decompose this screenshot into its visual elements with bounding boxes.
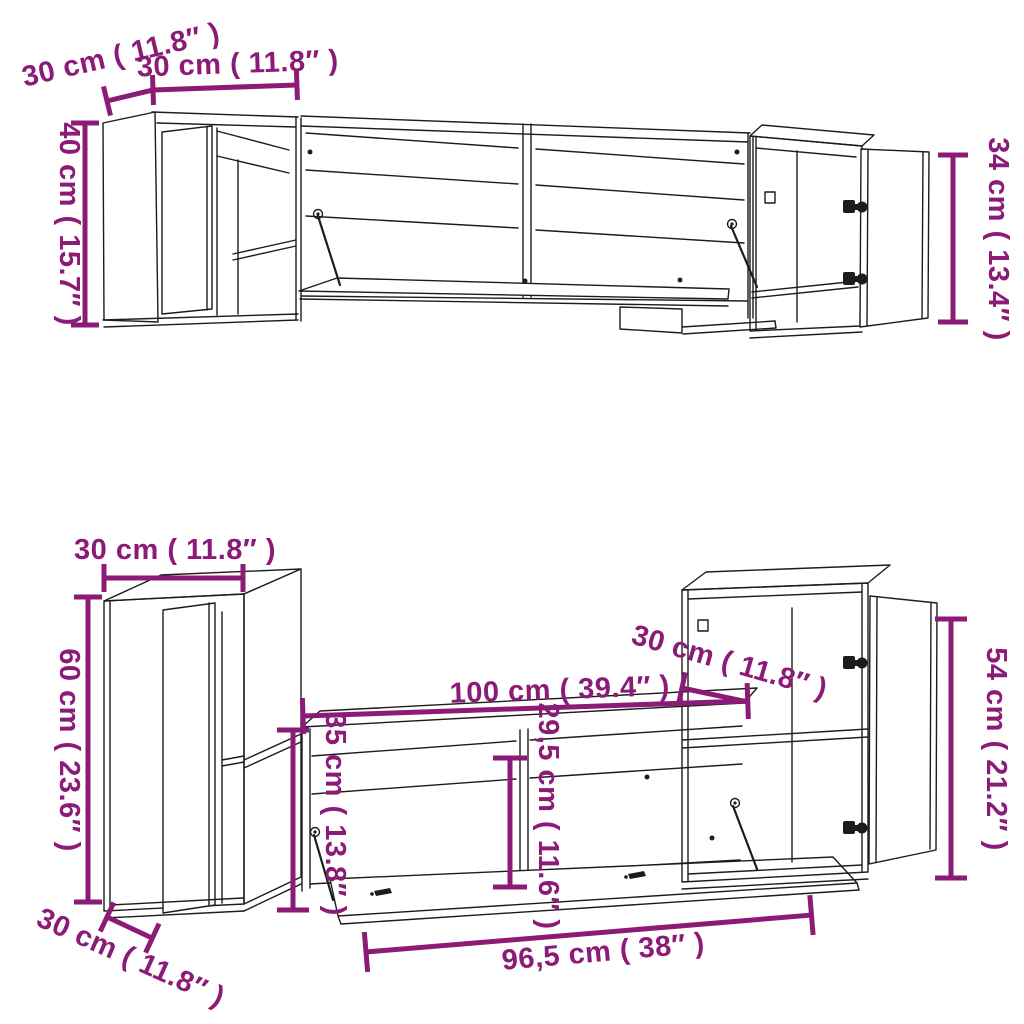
bottom-left-cabinet [104,569,301,918]
dim-label: 30 cm ( 11.8″ ) [136,44,339,83]
top-gas-struts [314,210,758,288]
pin-hole-dot [710,836,715,841]
furniture-dimension-drawing: 30 cm ( 11.8″ ) 30 cm ( 11.8″ ) 40 cm ( … [0,0,1024,1024]
dim-bottom-right-cabinet-height: 54 cm ( 21.2″ ) [935,619,1012,878]
top-right-cabinet [750,125,929,338]
dim-bottom-left-cabinet-height: 60 cm ( 23.6″ ) [53,597,102,902]
pin-hole-dot [678,278,683,283]
dim-top-left-cabinet-height: 40 cm ( 15.7″ ) [53,122,99,326]
hinge-icon [843,200,868,213]
dim-label: 29,5 cm ( 11.6″ ) [532,702,564,929]
open-door [869,596,937,864]
open-door [860,149,929,327]
dim-label: 35 cm ( 13.8″ ) [319,712,351,916]
dim-label: 60 cm ( 23.6″ ) [53,648,85,852]
dim-label: 30 cm ( 11.8″ ) [32,902,230,1013]
hinge-icon [843,821,868,834]
hinge-icon [843,272,868,285]
dim-label: 40 cm ( 15.7″ ) [53,122,85,326]
pin-hole-dot [308,150,313,155]
hinge-icon [843,656,868,669]
bottom-open-flap-door [311,828,860,925]
top-open-flap-door [299,278,776,334]
dim-top-right-cabinet-height: 34 cm ( 13.4″ ) [938,137,1014,341]
dim-label: 54 cm ( 21.2″ ) [980,647,1012,851]
top-left-cabinet [103,112,298,327]
dim-label: 34 cm ( 13.4″ ) [982,137,1014,341]
pin-hole-dot [735,150,740,155]
dim-top-side-cabinet-width: 30 cm ( 11.8″ ) [136,44,339,104]
dim-label: 30 cm ( 11.8″ ) [74,534,276,566]
wall-bracket [765,192,775,203]
bottom-tv-bench [302,688,757,891]
dimension-diagram-page: 30 cm ( 11.8″ ) 30 cm ( 11.8″ ) 40 cm ( … [0,0,1024,1024]
dim-bottom-left-cabinet-depth: 30 cm ( 11.8″ ) [32,902,230,1013]
bottom-right-gas-strut [710,799,758,870]
pin-hole-dot [645,775,650,780]
wall-bracket [698,620,708,631]
